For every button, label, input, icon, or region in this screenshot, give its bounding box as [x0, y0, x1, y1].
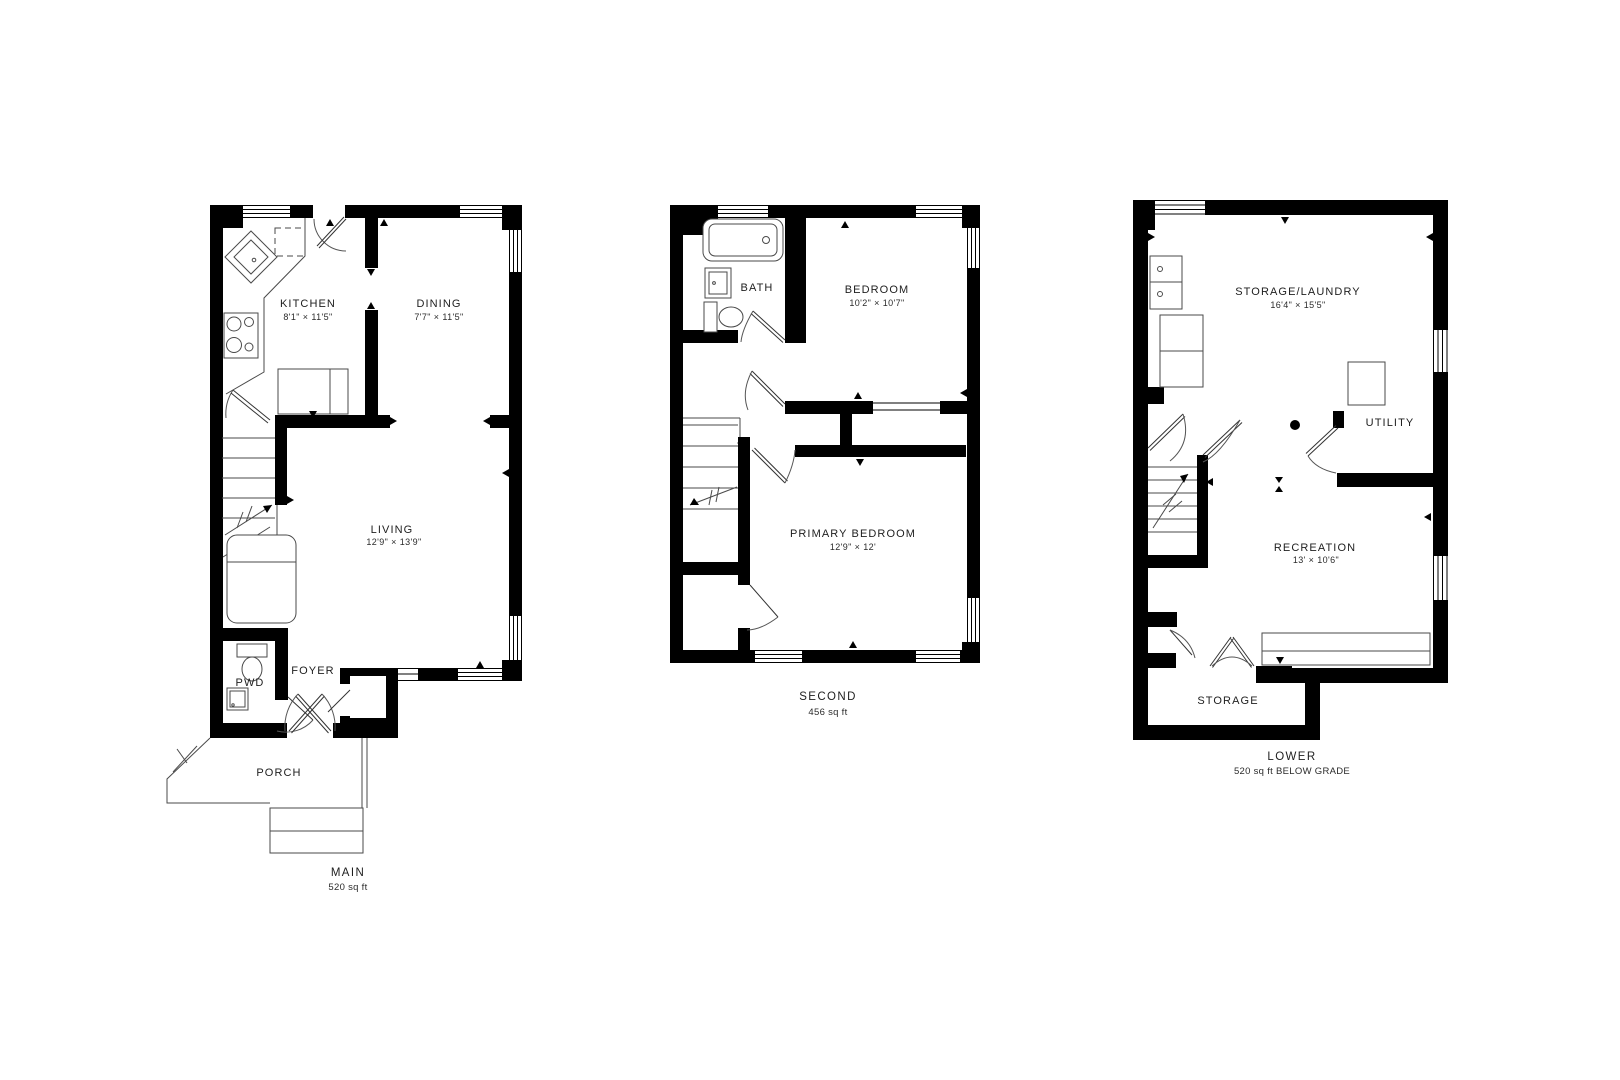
support-column [1290, 420, 1300, 430]
basement-shelf [1262, 633, 1430, 665]
lower-floor-area: 520 sq ft BELOW GRADE [1234, 766, 1350, 777]
main-ticks [287, 219, 509, 668]
second-floor-label: SECOND [799, 691, 857, 703]
pwd-toilet [237, 644, 267, 681]
kitchen-label: KITCHEN [280, 298, 336, 310]
dining-label: DINING [416, 298, 461, 310]
hourglass-marker [1275, 477, 1283, 492]
foyer-label: FOYER [291, 665, 334, 677]
lower-floor-plan: STORAGE/LAUNDRY 16'4" × 15'5" UTILITY RE… [1133, 200, 1448, 777]
lower-doors [1148, 414, 1338, 668]
living-dims: 12'9" × 13'9" [366, 537, 421, 547]
living-label: LIVING [371, 524, 414, 536]
kitchen-dims: 8'1" × 11'5" [283, 312, 332, 322]
bedroom-dims: 10'2" × 10'7" [849, 298, 904, 308]
primary-bedroom-dims: 12'9" × 12' [830, 542, 876, 552]
recreation-dims: 13' × 10'6" [1293, 555, 1339, 565]
bath-sink [705, 268, 731, 298]
bath-toilet [704, 302, 743, 332]
porch-label: PORCH [256, 767, 301, 779]
main-floor-label: MAIN [331, 867, 365, 879]
floorplan-canvas: KITCHEN 8'1" × 11'5" DINING 7'7" × 11'5"… [0, 0, 1620, 1080]
second-floor-plan: BATH BEDROOM 10'2" × 10'7" PRIMARY BEDRO… [670, 205, 980, 718]
lower-ticks [1148, 217, 1433, 664]
lower-floor-label: LOWER [1267, 751, 1316, 763]
main-porch [167, 738, 367, 853]
storage-laundry-dims: 16'4" × 15'5" [1270, 300, 1325, 310]
bedroom-label: BEDROOM [845, 284, 910, 296]
main-windows [225, 206, 522, 736]
stove [224, 313, 258, 358]
lower-stairs [1148, 467, 1197, 532]
dishwasher [275, 228, 305, 256]
furnace [1348, 362, 1385, 405]
storage-label: STORAGE [1197, 695, 1258, 707]
second-stairs [683, 418, 740, 509]
floorplan-page: KITCHEN 8'1" × 11'5" DINING 7'7" × 11'5"… [0, 0, 1620, 1080]
primary-bedroom-label: PRIMARY BEDROOM [790, 528, 916, 540]
washer-dryer [1160, 315, 1203, 387]
laundry-sinks [1150, 256, 1182, 309]
pwd-label: PWD [236, 677, 265, 689]
lower-fixtures [1150, 256, 1430, 665]
storage-laundry-label: STORAGE/LAUNDRY [1235, 286, 1361, 298]
main-floor-area: 520 sq ft [328, 882, 367, 893]
utility-label: UTILITY [1366, 417, 1415, 429]
main-floor-plan: KITCHEN 8'1" × 11'5" DINING 7'7" × 11'5"… [167, 205, 522, 893]
bath-label: BATH [741, 282, 774, 294]
recreation-label: RECREATION [1274, 542, 1356, 554]
sofa [227, 535, 296, 623]
refrigerator [278, 369, 348, 414]
dining-dims: 7'7" × 11'5" [414, 312, 463, 322]
bathtub [703, 219, 783, 261]
second-fixtures [703, 219, 783, 332]
pwd-sink [227, 688, 248, 710]
kitchen-sink [225, 231, 277, 283]
second-floor-area: 456 sq ft [808, 707, 847, 718]
